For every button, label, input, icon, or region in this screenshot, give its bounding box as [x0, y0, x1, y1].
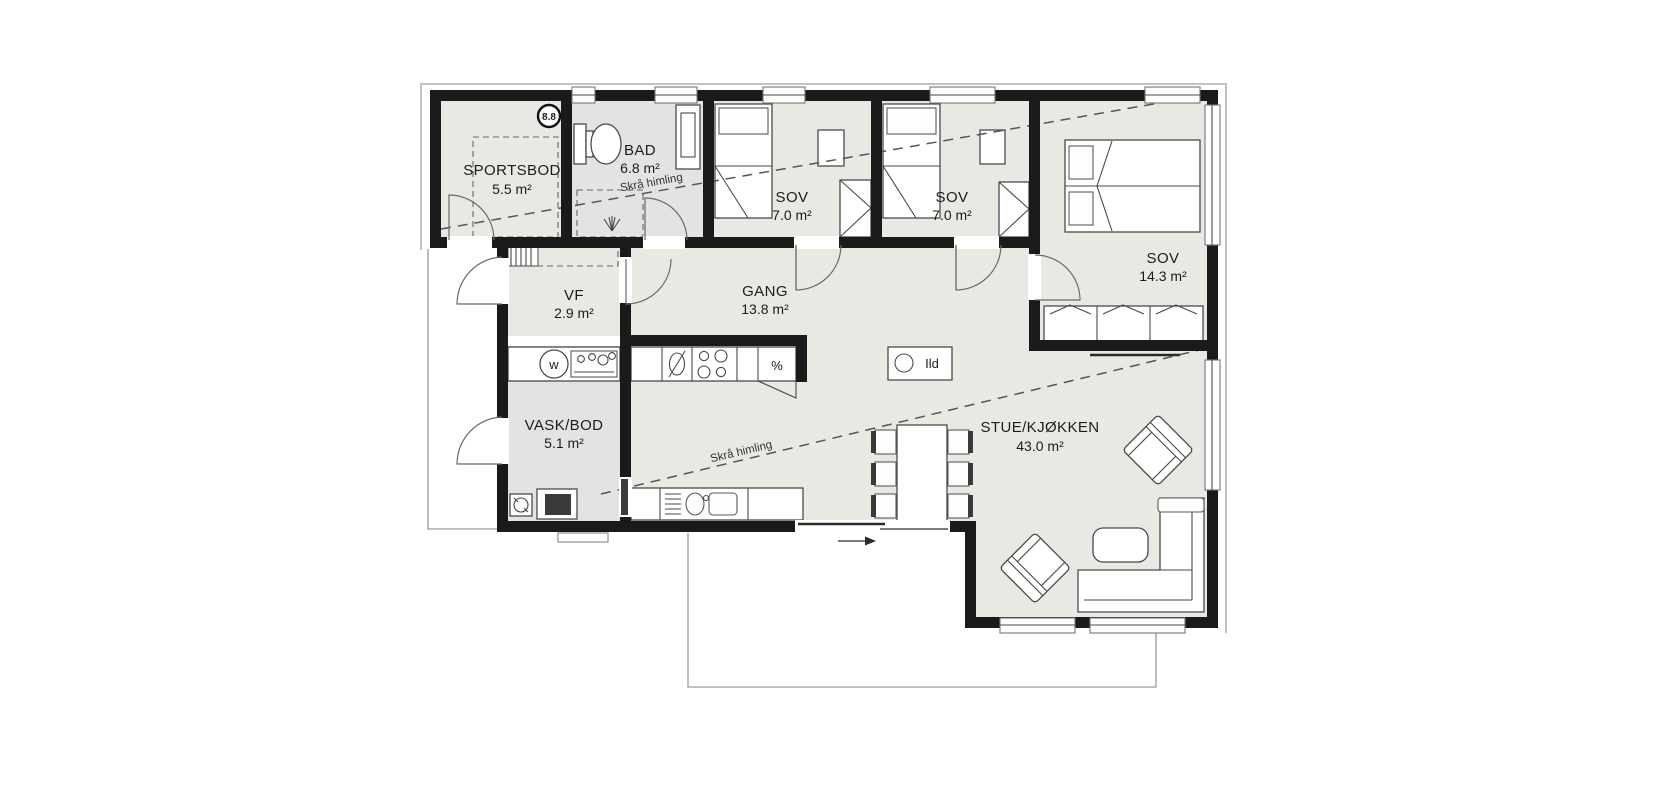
- laundry-sink-icon: [571, 351, 617, 377]
- room-label-vf: VF: [564, 287, 584, 304]
- vask-entry-door: [457, 417, 502, 464]
- room-area-sov1: 7.0 m²: [772, 207, 812, 223]
- room-area-sov2: 7.0 m²: [932, 207, 972, 223]
- room-area-gang: 13.8 m²: [741, 301, 789, 317]
- window-icon: [572, 87, 595, 103]
- height-marker-label: 8.8: [542, 112, 556, 123]
- room-area-bad: 6.8 m²: [620, 160, 660, 176]
- laundry-counter: w: [508, 347, 620, 381]
- washing-machine-icon: w: [540, 350, 568, 378]
- double-bed-icon: [1065, 140, 1200, 232]
- height-marker: 8.8: [538, 105, 560, 127]
- wardrobe-row-icon: [1044, 305, 1203, 341]
- oven-symbol: %: [771, 358, 783, 373]
- window-icon: [763, 87, 805, 103]
- vask-inner-door: [621, 479, 628, 515]
- room-label-gang: GANG: [742, 283, 788, 300]
- dining-set: [871, 425, 973, 521]
- wardrobe-icon: [999, 182, 1029, 237]
- toilet-icon: [574, 124, 621, 164]
- laundry-appliances: [510, 489, 577, 519]
- floor-gang: [631, 248, 1029, 336]
- window-icon: [1205, 105, 1220, 245]
- wardrobe-icon: [840, 180, 871, 237]
- room-label-sov1: SOV: [776, 189, 809, 206]
- fireplace-label-box: Ild: [888, 347, 952, 380]
- window-icon: [930, 87, 995, 103]
- entry-porch-outline: [428, 249, 497, 529]
- window-icon: [1090, 618, 1185, 633]
- window-icon: [1145, 87, 1200, 103]
- nightstand-icon: [980, 130, 1005, 164]
- dryer-icon: [537, 489, 577, 519]
- floor-plan-page: w: [0, 0, 1670, 800]
- floor-drain-square-icon: [510, 494, 532, 516]
- room-label-stue: STUE/KJØKKEN: [981, 419, 1100, 436]
- room-area-vf: 2.9 m²: [554, 305, 594, 321]
- room-label-vask: VASK/BOD: [525, 417, 604, 434]
- kitchen-counter-bottom: [631, 488, 803, 520]
- coffee-table-icon: [1093, 528, 1148, 562]
- window-icon: [1000, 618, 1075, 633]
- room-area-sportsbod: 5.5 m²: [492, 181, 532, 197]
- room-label-sov2: SOV: [936, 189, 969, 206]
- dining-table-icon: [897, 425, 947, 521]
- room-area-stue: 43.0 m²: [1016, 438, 1064, 454]
- room-area-sov3: 14.3 m²: [1139, 268, 1187, 284]
- room-label-sov3: SOV: [1147, 250, 1180, 267]
- room-label-bad: BAD: [624, 142, 656, 159]
- bed-icon: [883, 104, 940, 218]
- room-label-sportsbod: SPORTSBOD: [463, 162, 561, 179]
- vf-entry-door: [457, 257, 502, 304]
- floor-plan-drawing: w: [0, 0, 1670, 800]
- washer-symbol: w: [548, 357, 559, 372]
- window-icon: [1205, 360, 1220, 490]
- room-area-vask: 5.1 m²: [544, 435, 584, 451]
- bathroom-cabinet-icon: [676, 105, 700, 169]
- bed-icon: [715, 104, 772, 218]
- fireplace-label: Ild: [925, 356, 939, 371]
- window-icon: [655, 87, 697, 103]
